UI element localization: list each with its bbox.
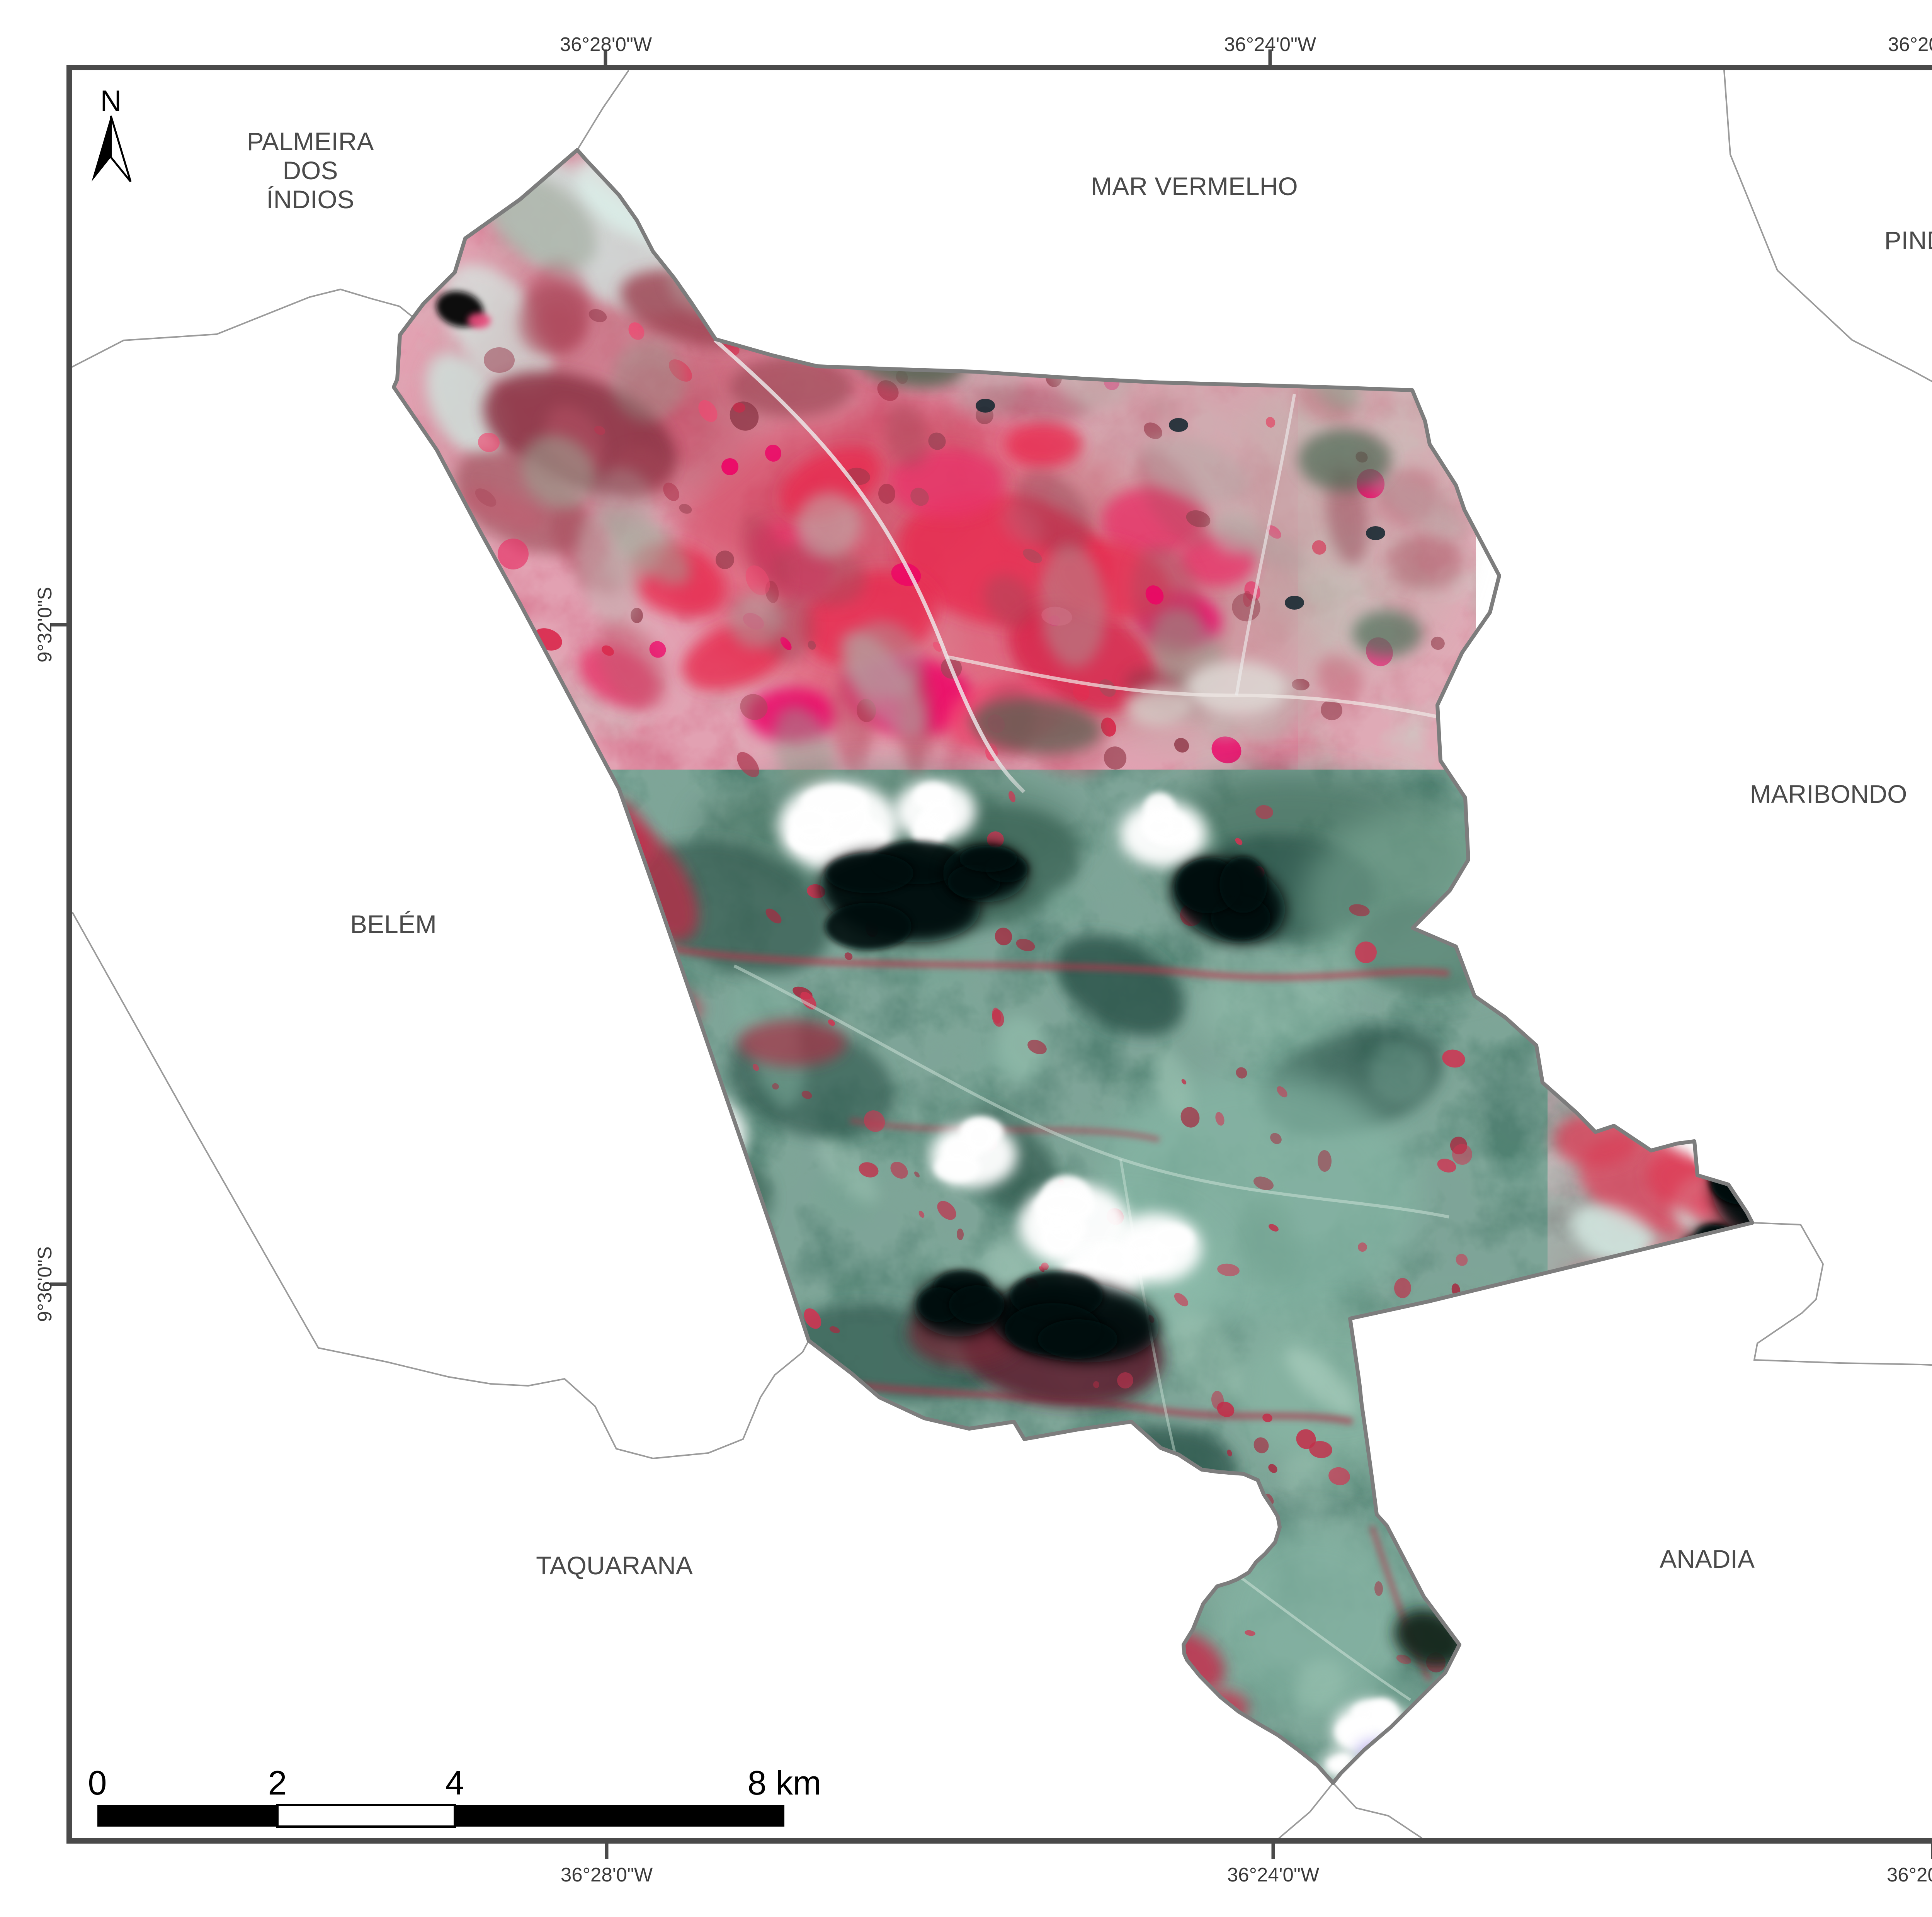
- svg-text:36°20'0"W: 36°20'0"W: [1887, 1864, 1932, 1886]
- svg-text:N: N: [100, 85, 122, 117]
- svg-text:0: 0: [88, 1764, 107, 1802]
- svg-text:ANADIA: ANADIA: [1660, 1545, 1755, 1573]
- svg-text:ÍNDIOS: ÍNDIOS: [266, 185, 354, 214]
- svg-text:36°20'0"W: 36°20'0"W: [1888, 33, 1932, 55]
- svg-text:36°24'0"W: 36°24'0"W: [1227, 1864, 1319, 1886]
- svg-text:2: 2: [268, 1764, 287, 1802]
- svg-text:8 km: 8 km: [748, 1764, 821, 1802]
- svg-text:MARIBONDO: MARIBONDO: [1750, 780, 1907, 808]
- svg-text:4: 4: [446, 1764, 464, 1802]
- svg-text:PINDOBA: PINDOBA: [1884, 226, 1932, 255]
- svg-text:36°28'0"W: 36°28'0"W: [561, 1864, 653, 1886]
- svg-text:9°32'0"S: 9°32'0"S: [34, 587, 56, 663]
- svg-text:DOS: DOS: [282, 156, 338, 185]
- svg-text:36°24'0"W: 36°24'0"W: [1224, 33, 1316, 55]
- svg-text:PALMEIRA: PALMEIRA: [247, 127, 374, 156]
- svg-text:BELÉM: BELÉM: [350, 910, 437, 938]
- svg-text:MAR VERMELHO: MAR VERMELHO: [1091, 172, 1298, 201]
- svg-text:9°36'0"S: 9°36'0"S: [34, 1246, 56, 1322]
- svg-text:TAQUARANA: TAQUARANA: [536, 1551, 693, 1580]
- svg-text:36°28'0"W: 36°28'0"W: [560, 33, 652, 55]
